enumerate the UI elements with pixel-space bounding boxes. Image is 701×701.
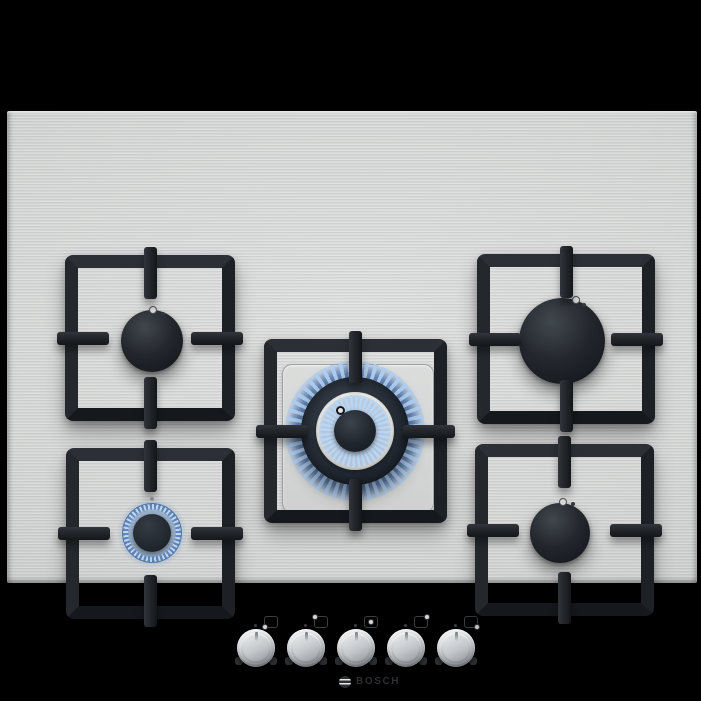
burner-unit-bottom-right <box>475 444 654 616</box>
pan-support-finger <box>256 425 308 438</box>
pan-support-finger <box>611 333 663 346</box>
pan-support-finger <box>144 377 157 429</box>
pan-support-finger <box>610 524 662 537</box>
pan-support-finger <box>144 575 157 627</box>
burner-position-top-left-icon <box>314 616 328 628</box>
brand-text: BOSCH <box>356 676 400 688</box>
pan-support-finger <box>467 524 519 537</box>
pan-support-finger <box>191 332 243 345</box>
burner-unit-top-right <box>477 254 655 424</box>
burner-dot <box>424 614 430 620</box>
burner-position-center-icon <box>364 616 378 628</box>
knob-pointer-mark <box>355 632 358 641</box>
burner-position-bottom-right-icon <box>464 616 478 628</box>
pan-support-finger <box>57 332 109 345</box>
burner-position-top-right-icon <box>414 616 428 628</box>
burner-dot <box>262 624 268 630</box>
burner-dot <box>368 619 374 625</box>
pan-support-finger <box>560 380 573 432</box>
knob-pointer-mark <box>305 632 308 641</box>
cooktop-surface: BOSCH <box>7 111 697 583</box>
knob-pointer-mark <box>255 632 258 641</box>
control-knob-center-burner <box>337 629 375 667</box>
pan-support-finger <box>191 527 243 540</box>
burner-position-bottom-left-icon <box>264 616 278 628</box>
bosch-armature-icon <box>339 676 351 688</box>
knob-off-position-dot <box>304 624 307 627</box>
product-image: BOSCH <box>0 0 701 701</box>
pan-support-finger <box>349 479 362 531</box>
pan-support-finger <box>558 436 571 488</box>
knob-group-1 <box>237 616 275 672</box>
burner-unit-center <box>264 339 447 523</box>
knob-group-2 <box>287 616 325 672</box>
knob-off-position-dot <box>254 624 257 627</box>
knob-off-position-dot <box>454 624 457 627</box>
knob-pointer-mark <box>455 632 458 641</box>
burner-dot <box>474 624 480 630</box>
pan-support-finger <box>558 572 571 624</box>
pan-support-finger <box>560 246 573 298</box>
knob-group-3 <box>337 616 375 672</box>
pan-support-finger <box>403 425 455 438</box>
pan-support-finger <box>349 331 362 383</box>
burner-dot <box>312 614 318 620</box>
knob-group-5 <box>437 616 475 672</box>
control-knob-top-right-burner <box>387 629 425 667</box>
bosch-logo: BOSCH <box>339 676 400 688</box>
control-knob-bottom-left-burner <box>237 629 275 667</box>
pan-support-finger <box>58 527 110 540</box>
control-knob-bottom-right-burner <box>437 629 475 667</box>
knob-pointer-mark <box>405 632 408 641</box>
pan-support-finger <box>469 333 521 346</box>
control-knob-top-left-burner <box>287 629 325 667</box>
pan-support-finger <box>144 440 157 492</box>
knob-off-position-dot <box>404 624 407 627</box>
burner-unit-bottom-left <box>66 448 235 619</box>
knob-off-position-dot <box>354 624 357 627</box>
burner-unit-top-left <box>65 255 235 421</box>
knob-group-4 <box>387 616 425 672</box>
pan-support-finger <box>144 247 157 299</box>
